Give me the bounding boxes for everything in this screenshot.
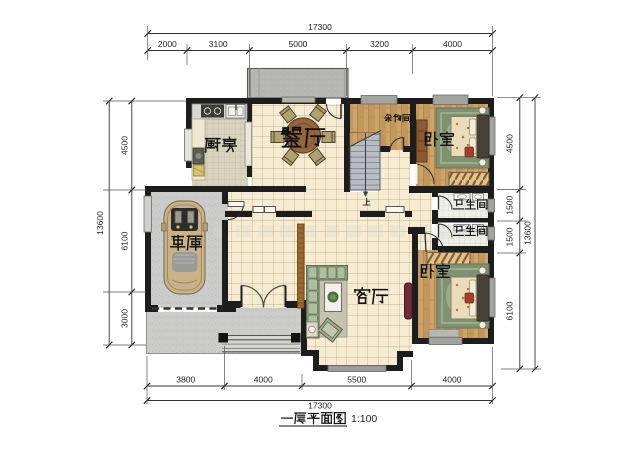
svg-text:3000: 3000 (120, 309, 130, 328)
svg-text:2000: 2000 (158, 39, 177, 49)
svg-text:1:100: 1:100 (351, 413, 377, 425)
svg-text:5500: 5500 (347, 375, 366, 385)
svg-text:4500: 4500 (505, 134, 515, 153)
svg-text:4500: 4500 (120, 136, 130, 155)
svg-text:17300: 17300 (308, 22, 332, 32)
svg-text:17300: 17300 (308, 401, 332, 411)
svg-text:1500: 1500 (505, 196, 515, 215)
svg-text:3800: 3800 (176, 375, 195, 385)
svg-text:6100: 6100 (120, 231, 130, 250)
svg-text:1500: 1500 (505, 227, 515, 246)
svg-text:3100: 3100 (209, 39, 228, 49)
svg-text:4000: 4000 (443, 375, 462, 385)
svg-text:4000: 4000 (443, 39, 462, 49)
svg-text:13600: 13600 (523, 221, 533, 245)
svg-text:3200: 3200 (370, 39, 389, 49)
svg-text:6100: 6100 (505, 301, 515, 320)
svg-text:13600: 13600 (95, 211, 105, 235)
svg-text:5000: 5000 (288, 39, 307, 49)
svg-text:4000: 4000 (254, 375, 273, 385)
